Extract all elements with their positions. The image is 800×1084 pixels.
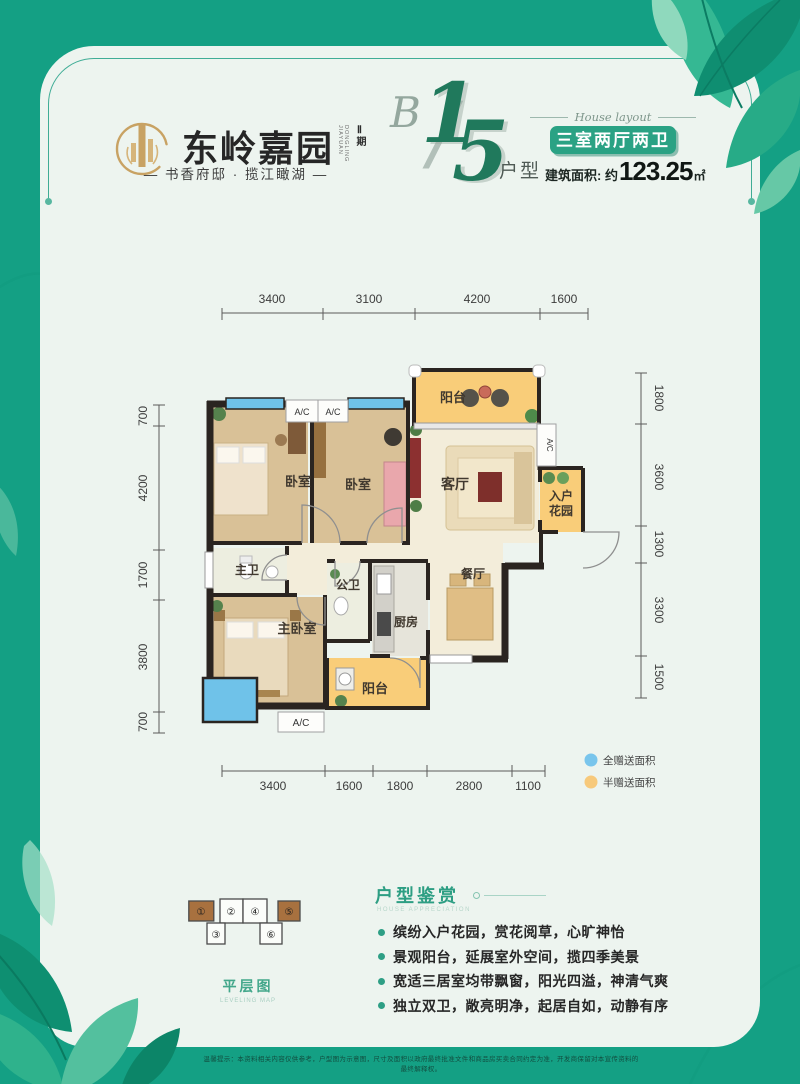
disclaimer-text: 温馨提示：本资料相关内容仅供参考，户型图为示意图，尺寸及面积以政府最终批准文件和… <box>203 1053 639 1073</box>
list-item: 缤纷入户花园，赏花阅草，心旷神怡 <box>378 922 669 942</box>
unit-6: ⑥ <box>267 930 276 941</box>
dim-left-5: 700 <box>138 712 150 732</box>
brand-phase: Ⅱ期 <box>352 125 367 167</box>
appreciation-subtitle: HOUSE APPRECIATION <box>377 907 471 913</box>
ac-label-3: A/C <box>545 438 554 452</box>
dim-left-4: 3800 <box>138 643 150 670</box>
bullet-dot <box>378 953 385 960</box>
dim-bottom-5: 1100 <box>515 779 541 793</box>
level-map-title-block: 平层图 LEVELING MAP <box>178 976 318 1004</box>
floor-plan: 3400 3100 4200 1600 3400 1600 1800 2800 … <box>138 276 668 801</box>
label-bedroom-b: 卧室 <box>345 477 371 492</box>
dim-bottom-4: 2800 <box>456 779 483 793</box>
dim-top-1: 3400 <box>259 292 286 306</box>
unit-2: ② <box>227 907 236 918</box>
dim-top-2: 3100 <box>356 292 383 306</box>
feature-bullets: 缤纷入户花园，赏花阅草，心旷神怡 景观阳台，延展室外空间，揽四季美景 宽适三居室… <box>378 922 669 1020</box>
gift-area-legend: 全赠送面积 半赠送面积 <box>585 754 656 790</box>
bullet-text-4: 独立双卫，敞亮明净，起居自如，动静有序 <box>393 996 669 1016</box>
ac-label-1: A/C <box>294 407 310 417</box>
arc-end-dot-right <box>748 198 755 205</box>
unit-4: ④ <box>251 907 260 918</box>
dim-top-4: 1600 <box>551 292 578 306</box>
label-balcony-bottom: 阳台 <box>362 681 388 696</box>
list-item: 宽适三居室均带飘窗，阳光四溢，神清气爽 <box>378 971 669 991</box>
label-living: 客厅 <box>440 476 469 492</box>
label-balcony-top: 阳台 <box>440 390 466 405</box>
bullet-dot <box>378 1002 385 1009</box>
legend-label-full: 全赠送面积 <box>603 754 656 767</box>
house-layout-script: House layout <box>518 110 708 124</box>
bullet-text-1: 缤纷入户花园，赏花阅草，心旷神怡 <box>393 922 625 942</box>
label-garden-2: 花园 <box>549 503 573 518</box>
level-map: ① ② ③ ④ ⑤ ⑥ <box>188 896 308 948</box>
dim-left-1: 700 <box>138 406 150 426</box>
level-map-title: 平层图 <box>178 976 318 996</box>
bullet-dot <box>378 978 385 985</box>
area-prefix: 建筑面积: 约 <box>545 165 618 184</box>
bullet-text-3: 宽适三居室均带飘窗，阳光四溢，神清气爽 <box>393 971 669 991</box>
level-map-subtitle: LEVELING MAP <box>178 998 318 1004</box>
area-unit: ㎡ <box>693 167 705 184</box>
unit-5: ⑤ <box>285 907 294 918</box>
content-card: 东岭嘉园 DONGLING JIAYUAN Ⅱ期 — 书香府邸 · 揽江瞰湖 —… <box>40 46 760 1047</box>
bullet-dot <box>378 929 385 936</box>
unit-type-suffix: 户型 <box>499 156 541 183</box>
label-bedroom-a: 卧室 <box>285 474 311 489</box>
dim-right-3: 1300 <box>652 531 666 558</box>
label-garden-1: 入户 <box>549 488 573 503</box>
dim-right-4: 3300 <box>652 597 666 624</box>
dim-bottom-1: 3400 <box>260 779 287 793</box>
title-deco-circle <box>473 892 480 899</box>
ac-label-4: A/C <box>293 718 310 729</box>
built-area: 建筑面积: 约 123.25 ㎡ <box>545 156 706 187</box>
unit-letter: B <box>390 88 421 137</box>
room-count-badge: 三室两厅两卫 <box>550 126 676 154</box>
poster: 东岭嘉园 DONGLING JIAYUAN Ⅱ期 — 书香府邸 · 揽江瞰湖 —… <box>0 0 800 1084</box>
label-master-bath: 主卫 <box>235 562 259 577</box>
area-value: 123.25 <box>619 156 693 187</box>
brand-side-text: DONGLING JIAYUAN Ⅱ期 <box>337 125 367 167</box>
label-master-bedroom: 主卧室 <box>277 621 316 636</box>
script-text: House layout <box>575 110 652 124</box>
label-public-bath: 公卫 <box>336 578 360 592</box>
brand-english: DONGLING JIAYUAN <box>337 125 349 167</box>
appreciation-title-row: 户型鉴赏 <box>375 882 546 908</box>
label-kitchen: 厨房 <box>394 614 418 629</box>
dim-bottom-2: 1600 <box>336 779 363 793</box>
script-line-left <box>530 117 568 118</box>
dim-left-2: 4200 <box>138 474 150 501</box>
legend-label-half: 半赠送面积 <box>603 776 656 789</box>
arc-end-dot-left <box>45 198 52 205</box>
unit-1: ① <box>197 907 206 918</box>
ac-label-2: A/C <box>325 407 341 417</box>
list-item: 独立双卫，敞亮明净，起居自如，动静有序 <box>378 996 669 1016</box>
list-item: 景观阳台，延展室外空间，揽四季美景 <box>378 947 669 967</box>
dim-left-3: 1700 <box>138 561 150 588</box>
dim-top-3: 4200 <box>464 292 491 306</box>
title-deco-line <box>484 895 546 896</box>
script-line-right <box>658 117 696 118</box>
dim-right-2: 3600 <box>652 464 666 491</box>
dim-right-1: 1800 <box>652 385 666 412</box>
unit-3: ③ <box>212 930 221 941</box>
gift-bay-window <box>203 678 257 722</box>
unit-digit-5: 5 <box>452 104 509 200</box>
bullet-text-2: 景观阳台，延展室外空间，揽四季美景 <box>393 947 640 967</box>
brand-tagline: — 书香府邸 · 揽江瞰湖 — <box>106 163 366 183</box>
dim-bottom-3: 1800 <box>387 779 414 793</box>
appreciation-title: 户型鉴赏 <box>375 882 459 908</box>
dim-right-5: 1500 <box>652 664 666 691</box>
legend-dot-half <box>585 776 598 789</box>
legend-dot-full <box>585 754 598 767</box>
label-dining: 餐厅 <box>461 566 485 581</box>
